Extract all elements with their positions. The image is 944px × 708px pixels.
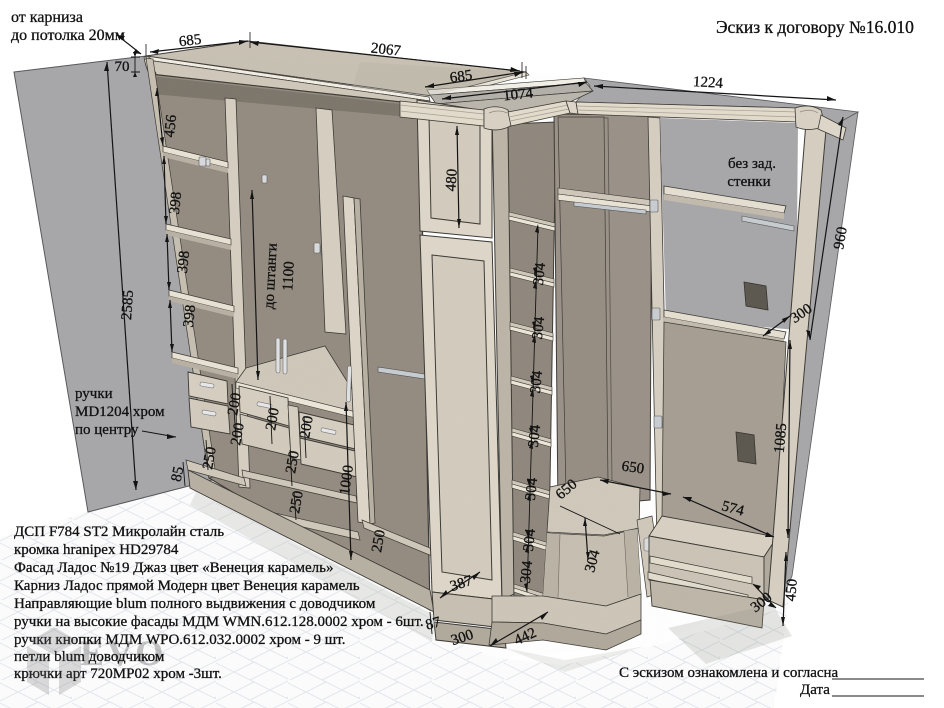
svg-text:1100: 1100 [280, 261, 298, 291]
svg-text:С эскизом ознакомлена и соглас: С эскизом ознакомлена и согласна [619, 665, 839, 681]
svg-text:304: 304 [526, 424, 544, 449]
svg-text:1224: 1224 [692, 74, 723, 92]
svg-text:2585: 2585 [119, 290, 137, 321]
svg-text:650: 650 [621, 459, 646, 478]
svg-text:1074: 1074 [502, 85, 534, 104]
svg-text:398: 398 [167, 191, 185, 215]
svg-text:685: 685 [449, 68, 474, 87]
svg-text:304: 304 [531, 262, 549, 287]
svg-text:кромка hranipex HD29784: кромка hranipex HD29784 [14, 542, 179, 558]
svg-text:Фасад Ладос №19 Джаз цвет «Вен: Фасад Ладос №19 Джаз цвет «Венеция карам… [14, 560, 334, 576]
svg-text:EVO: EVO [80, 633, 166, 673]
svg-text:по центру: по центру [75, 422, 139, 438]
svg-text:480: 480 [443, 168, 461, 192]
svg-text:ручки: ручки [75, 386, 113, 402]
svg-text:685: 685 [178, 32, 202, 51]
svg-text:ручки на высокие фасады МДМ WM: ручки на высокие фасады МДМ WMN.612.128.… [14, 614, 424, 630]
svg-text:MD1204 хром: MD1204 хром [75, 404, 165, 420]
svg-text:304: 304 [528, 370, 546, 395]
svg-text:304: 304 [518, 560, 536, 585]
svg-text:304: 304 [530, 316, 548, 341]
svg-text:от карниза: от карниза [11, 9, 83, 26]
svg-text:ДСП F784 ST2 Микролайн сталь: ДСП F784 ST2 Микролайн сталь [14, 524, 224, 540]
svg-text:Направляющие blum полного выдв: Направляющие blum полного выдвижения с д… [14, 596, 376, 612]
svg-text:304: 304 [523, 477, 541, 502]
svg-text:2067: 2067 [370, 40, 402, 59]
svg-text:без зад.: без зад. [728, 156, 776, 172]
svg-text:450: 450 [783, 578, 801, 602]
svg-text:456: 456 [162, 114, 180, 139]
svg-text:стенки: стенки [727, 174, 770, 190]
svg-text:70: 70 [115, 59, 130, 75]
svg-text:398: 398 [181, 304, 199, 328]
svg-text:до потолка 20мм: до потолка 20мм [11, 27, 125, 44]
svg-text:Эскиз к договору №16.010: Эскиз к договору №16.010 [716, 17, 914, 37]
svg-text:398: 398 [175, 250, 193, 274]
svg-text:304: 304 [521, 528, 539, 553]
svg-text:Карниз Ладос прямой Модерн цве: Карниз Ладос прямой Модерн цвет Венеция … [14, 578, 360, 594]
svg-text:Дата: Дата [800, 682, 830, 698]
svg-text:1085: 1085 [772, 422, 791, 453]
